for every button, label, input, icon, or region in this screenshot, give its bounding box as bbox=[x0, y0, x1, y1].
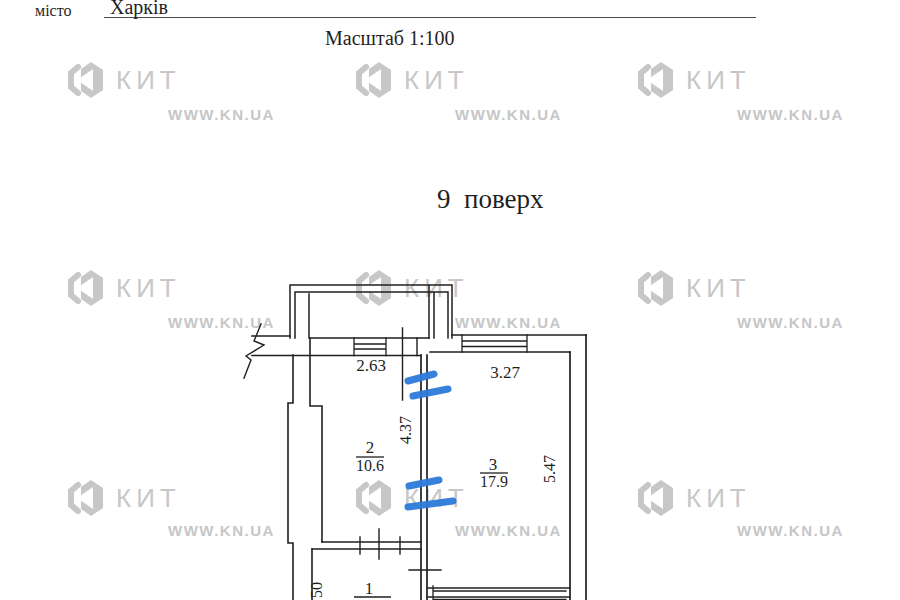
dimension-bottom-left-partial: 50 bbox=[308, 582, 325, 598]
window-2 bbox=[462, 335, 527, 352]
top-wall-right bbox=[430, 335, 586, 352]
marker-stroke bbox=[408, 501, 453, 507]
room-number: 1 bbox=[365, 579, 374, 598]
room3-bottom-window bbox=[428, 586, 570, 600]
room-2-label: 2 10.6 bbox=[356, 438, 384, 474]
room2-bottom-wall bbox=[312, 542, 421, 549]
marker-stroke bbox=[413, 389, 448, 396]
room-area: 10.6 bbox=[356, 457, 384, 474]
dimension-top-right: 3.27 bbox=[490, 363, 520, 382]
room-number: 2 bbox=[366, 438, 375, 457]
room-1-label: 1 bbox=[354, 579, 391, 598]
floor-title: 9 поверх bbox=[437, 184, 544, 215]
room-3-label: 3 17.9 bbox=[480, 455, 508, 490]
city-field-label: місто bbox=[35, 2, 71, 20]
city-field-underline bbox=[104, 17, 756, 18]
dimension-top-left: 2.63 bbox=[356, 356, 386, 375]
blue-marker-annotation bbox=[408, 374, 453, 507]
window-1 bbox=[354, 338, 386, 356]
room-area: 17.9 bbox=[480, 473, 508, 490]
room2-door-ticks bbox=[360, 529, 400, 559]
right-wall bbox=[570, 335, 586, 600]
dimension-middle-vertical: 4.37 bbox=[397, 416, 414, 444]
room-number: 3 bbox=[489, 455, 498, 474]
scale-label: Масштаб 1:100 bbox=[325, 27, 455, 50]
marker-stroke bbox=[409, 480, 439, 486]
left-wall bbox=[288, 338, 322, 600]
floor-plan: 2 10.6 3 17.9 1 2.63 3.27 4.37 5.47 50 bbox=[0, 0, 900, 600]
balcony-walls bbox=[290, 285, 452, 338]
marker-stroke bbox=[408, 374, 434, 381]
wall-break-icon bbox=[244, 324, 264, 378]
dimension-right-vertical: 5.47 bbox=[541, 455, 558, 483]
